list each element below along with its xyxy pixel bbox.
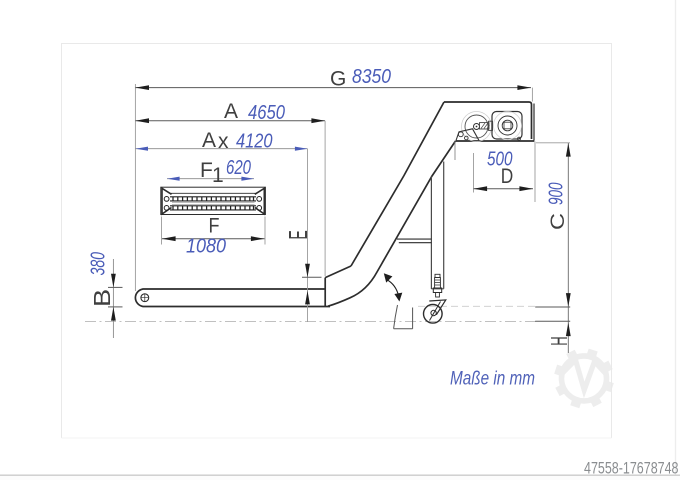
svg-text:47558-17678748: 47558-17678748 [584, 460, 679, 478]
svg-text:Maße in mm: Maße in mm [450, 369, 535, 390]
svg-text:F: F [200, 159, 213, 182]
svg-text:F: F [209, 215, 220, 238]
svg-text:8350: 8350 [352, 66, 391, 88]
svg-text:G: G [330, 68, 346, 91]
svg-text:380: 380 [88, 252, 110, 276]
svg-text:4650: 4650 [248, 102, 285, 124]
svg-text:1080: 1080 [186, 236, 226, 258]
svg-text:500: 500 [487, 149, 513, 171]
svg-text:900: 900 [546, 183, 568, 206]
svg-text:B: B [90, 289, 115, 307]
svg-text:A: A [202, 129, 216, 152]
svg-text:x: x [218, 130, 229, 153]
svg-text:E: E [285, 230, 314, 239]
svg-text:1: 1 [212, 164, 224, 187]
svg-text:A: A [224, 100, 238, 123]
svg-text:C: C [546, 213, 569, 230]
svg-text:4120: 4120 [236, 131, 273, 153]
svg-text:H: H [546, 336, 572, 345]
svg-text:620: 620 [226, 157, 251, 179]
